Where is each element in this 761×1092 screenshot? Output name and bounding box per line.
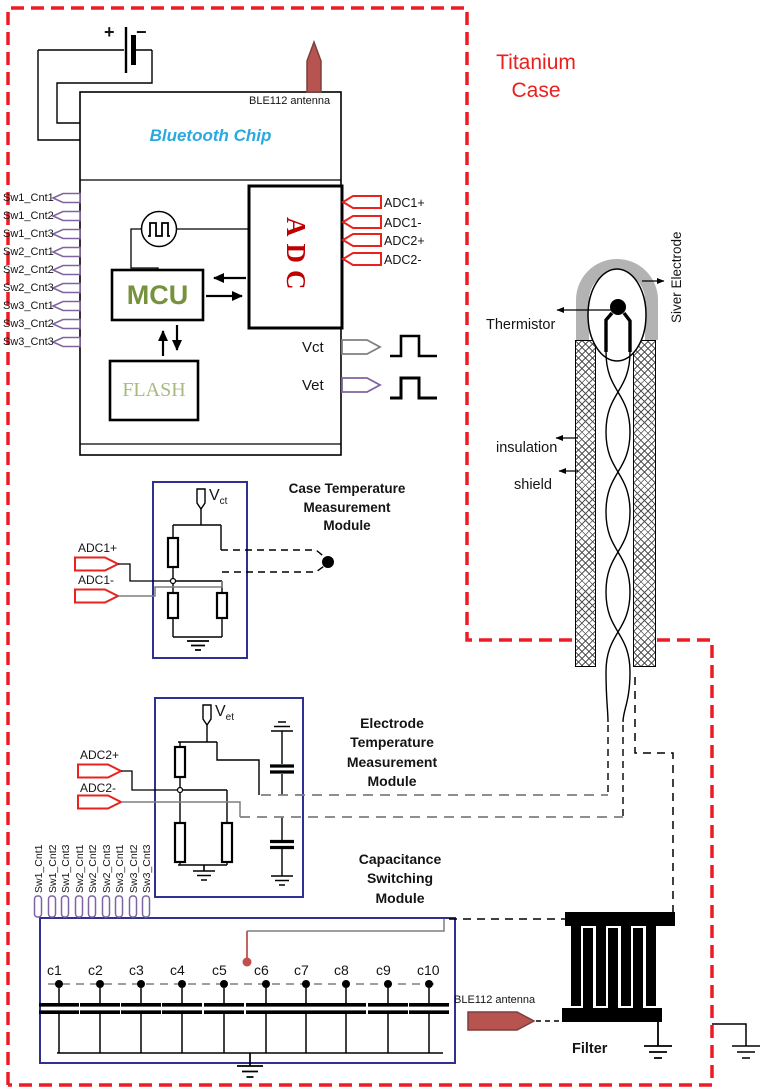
electrode-module-title: ElectrodeTemperature MeasurementModule bbox=[340, 714, 444, 791]
sw-pin-label: Sw3_Cnt1 bbox=[3, 300, 54, 312]
shield-label: shield bbox=[514, 477, 552, 493]
sw-pin-label-rot: Sw3_Cnt1 bbox=[115, 845, 127, 893]
cap-label: c5 bbox=[212, 963, 227, 979]
sw-pin-label: Sw3_Cnt3 bbox=[3, 336, 54, 348]
bluetooth-chip-title: Bluetooth Chip bbox=[80, 126, 341, 145]
sw-pin-label-rot: Sw2_Cnt1 bbox=[75, 845, 87, 893]
thermistor-bead bbox=[610, 299, 626, 315]
case-ground-icon bbox=[712, 1024, 760, 1058]
cap-label: c2 bbox=[88, 963, 103, 979]
vct-output-label: Vct bbox=[302, 340, 324, 357]
vct-pin-icon bbox=[342, 340, 380, 354]
cap-label: c10 bbox=[417, 963, 440, 979]
cap-label: c1 bbox=[47, 963, 62, 979]
sw-pin-label: Sw2_Cnt2 bbox=[3, 264, 54, 276]
adc-pin-label: ADC1+ bbox=[384, 196, 425, 210]
sw-pin-label: Sw2_Cnt3 bbox=[3, 282, 54, 294]
cap-label: c3 bbox=[129, 963, 144, 979]
sw-pin-label: Sw1_Cnt2 bbox=[3, 210, 54, 222]
adc-pin-label: ADC1- bbox=[384, 216, 422, 230]
antenna-bottom-icon bbox=[468, 1012, 562, 1030]
schematic-canvas: TitaniumCase + − BLE112 antenna Bluetoot… bbox=[0, 0, 761, 1092]
sw-pin-label-rot: Sw2_Cnt2 bbox=[88, 845, 100, 893]
cap-label: c9 bbox=[376, 963, 391, 979]
ble112-antenna-bottom-label: BLE112 antenna bbox=[454, 994, 535, 1006]
adc-connector-pins bbox=[343, 196, 381, 265]
sw-pin-label-rot: Sw1_Cnt1 bbox=[34, 845, 46, 893]
adc1-minus-label: ADC1- bbox=[78, 574, 114, 587]
antenna-icon bbox=[307, 42, 321, 92]
cap-label: c7 bbox=[294, 963, 309, 979]
cap-label: c8 bbox=[334, 963, 349, 979]
battery-minus-label: − bbox=[136, 22, 147, 42]
case-module-title: Case TemperatureMeasurementModule bbox=[284, 480, 410, 536]
thermistor-label: Thermistor bbox=[486, 317, 555, 333]
adc2-minus-label: ADC2- bbox=[80, 782, 116, 795]
vet-node-label: Vet bbox=[215, 703, 234, 723]
flash-label: FLASH bbox=[110, 361, 198, 420]
filter-icon bbox=[562, 912, 675, 1058]
silver-electrode-label: Siver Electrode bbox=[669, 231, 684, 323]
mcu-label: MCU bbox=[112, 270, 203, 320]
battery-icon bbox=[38, 27, 152, 140]
cap-label: c4 bbox=[170, 963, 185, 979]
vet-pin-icon bbox=[342, 378, 380, 392]
adc-pin-label: ADC2- bbox=[384, 253, 422, 267]
battery-plus-label: + bbox=[104, 22, 115, 42]
adc2-plus-label: ADC2+ bbox=[80, 749, 119, 762]
cap-label: c6 bbox=[254, 963, 269, 979]
sw-pin-label: Sw1_Cnt3 bbox=[3, 228, 54, 240]
clock-oscillator-icon bbox=[131, 212, 249, 271]
sw-pin-label-rot: Sw2_Cnt3 bbox=[102, 845, 114, 893]
titanium-case-label: TitaniumCase bbox=[480, 49, 592, 106]
sw-connector-pins bbox=[53, 194, 80, 347]
sw-pin-label-rot: Sw3_Cnt3 bbox=[142, 845, 154, 893]
sw-pin-label: Sw1_Cnt1 bbox=[3, 192, 54, 204]
sw-pin-label: Sw3_Cnt2 bbox=[3, 318, 54, 330]
cap-module-title: CapacitanceSwitchingModule bbox=[352, 850, 448, 908]
filter-label: Filter bbox=[572, 1041, 607, 1057]
pulse-waveform-icons bbox=[390, 336, 437, 398]
adc-label: ADC bbox=[249, 186, 342, 328]
sw-pin-label-rot: Sw1_Cnt3 bbox=[61, 845, 73, 893]
vet-output-label: Vet bbox=[302, 378, 324, 395]
ble112-antenna-top-label: BLE112 antenna bbox=[249, 95, 330, 107]
sw-connector-pins-bottom bbox=[35, 896, 150, 917]
adc1-plus-label: ADC1+ bbox=[78, 542, 117, 555]
insulation-label: insulation bbox=[496, 440, 557, 456]
probe-assembly bbox=[556, 259, 673, 912]
sw-pin-label-rot: Sw3_Cnt2 bbox=[129, 845, 141, 893]
vct-node-label: Vct bbox=[209, 487, 227, 507]
adc-pin-label: ADC2+ bbox=[384, 234, 425, 248]
sw-pin-label: Sw2_Cnt1 bbox=[3, 246, 54, 258]
sw-pin-label-rot: Sw1_Cnt2 bbox=[48, 845, 60, 893]
